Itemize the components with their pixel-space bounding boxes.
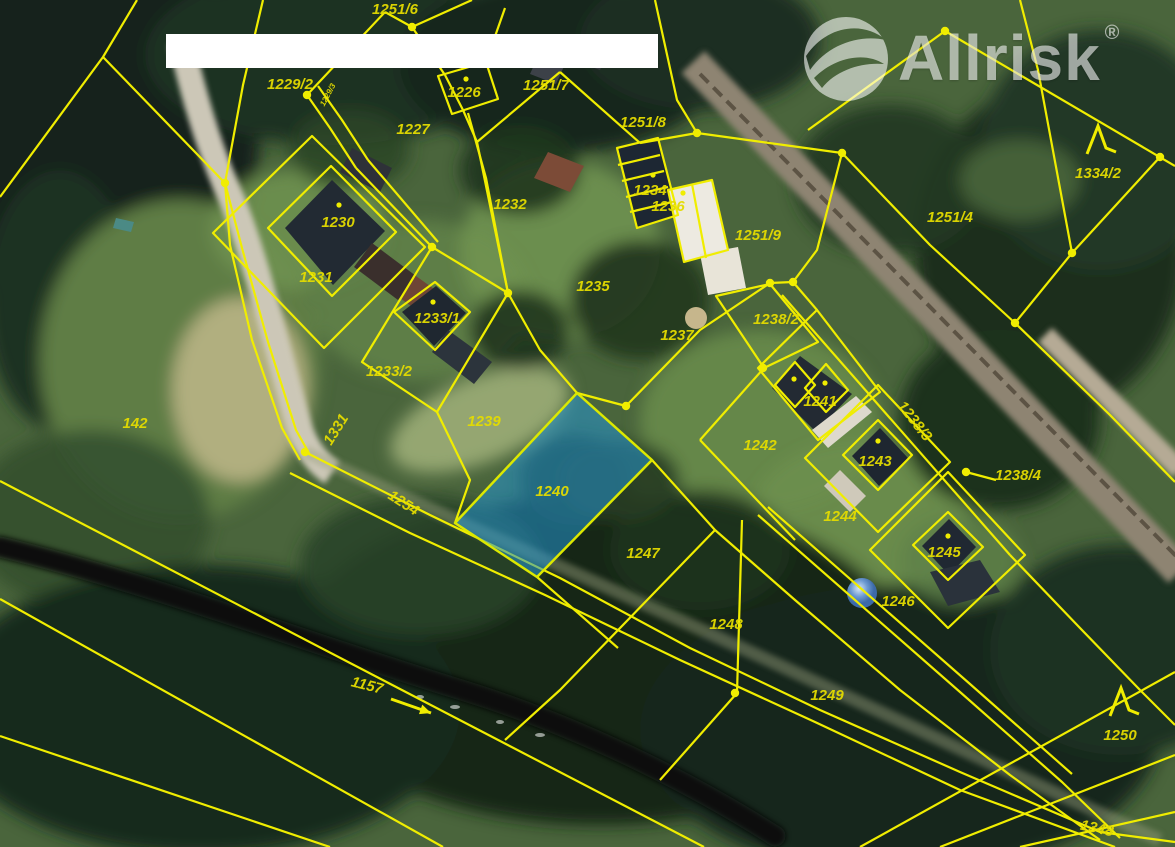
map-viewport: 1251/61229/21229/3122612271251/71251/813… bbox=[0, 0, 1175, 847]
house-marker-dot bbox=[822, 380, 827, 385]
parcel-label-1240: 1240 bbox=[535, 483, 569, 500]
parcel-label-1237: 1237 bbox=[660, 327, 694, 344]
parcel-label-1232: 1232 bbox=[493, 196, 527, 213]
parcel-label-1248: 1248 bbox=[709, 616, 743, 633]
parcel-label-1236: 1236 bbox=[651, 198, 685, 215]
parcel-label-1229/2: 1229/2 bbox=[267, 76, 314, 93]
house-marker-dot bbox=[791, 376, 796, 381]
parcel-label-1243: 1243 bbox=[858, 453, 892, 470]
cadastral-aerial-map: 1251/61229/21229/3122612271251/71251/813… bbox=[0, 0, 1175, 847]
house-marker-dot bbox=[875, 438, 880, 443]
parcel-label-1235: 1235 bbox=[576, 278, 610, 295]
house-marker-dot bbox=[650, 172, 655, 177]
boundary-vertex-dot bbox=[1156, 153, 1164, 161]
parcel-label-1231: 1231 bbox=[299, 269, 332, 286]
parcel-label-1247: 1247 bbox=[626, 545, 660, 562]
parcel-label-1241: 1241 bbox=[803, 393, 836, 410]
parcel-label-1334/2: 1334/2 bbox=[1075, 165, 1122, 182]
parcel-label-1251/9: 1251/9 bbox=[735, 227, 782, 244]
boundary-vertex-dot bbox=[838, 149, 846, 157]
parcel-label-1239: 1239 bbox=[467, 413, 501, 430]
pool-dome bbox=[847, 578, 877, 608]
boundary-vertex-dot bbox=[1011, 319, 1019, 327]
house-marker-dot bbox=[463, 76, 468, 81]
parcel-label-1250: 1250 bbox=[1103, 727, 1137, 744]
boundary-vertex-dot bbox=[622, 402, 630, 410]
boundary-vertex-dot bbox=[962, 468, 970, 476]
boundary-vertex-dot bbox=[1068, 249, 1076, 257]
parcel-label-1249: 1249 bbox=[810, 687, 844, 704]
redaction-bar bbox=[166, 34, 658, 68]
parcel-label-1251/8: 1251/8 bbox=[620, 114, 667, 131]
boundary-vertex-dot bbox=[941, 27, 949, 35]
house-marker-dot bbox=[430, 299, 435, 304]
round-feature bbox=[685, 307, 707, 329]
house-marker-dot bbox=[336, 202, 341, 207]
parcel-label-1246: 1246 bbox=[881, 593, 915, 610]
boundary-vertex-dot bbox=[504, 289, 512, 297]
boundary-vertex-dot bbox=[789, 278, 797, 286]
parcel-label-1251/4: 1251/4 bbox=[927, 209, 974, 226]
boundary-vertex-dot bbox=[408, 23, 416, 31]
boundary-vertex-dot bbox=[221, 179, 229, 187]
parcel-label-1245: 1245 bbox=[927, 544, 961, 561]
boundary-vertex-dot bbox=[766, 279, 774, 287]
parcel-label-1233/2: 1233/2 bbox=[366, 363, 413, 380]
boundary-vertex-dot bbox=[759, 364, 767, 372]
parcel-label-1238/2: 1238/2 bbox=[753, 311, 800, 328]
parcel-label-1234: 1234 bbox=[633, 182, 667, 199]
parcel-label-1233/1: 1233/1 bbox=[414, 310, 460, 327]
parcel-label-1244: 1244 bbox=[823, 508, 857, 525]
parcel-label-1230: 1230 bbox=[321, 214, 355, 231]
boundary-vertex-dot bbox=[731, 689, 739, 697]
white-annex bbox=[700, 247, 746, 295]
house-marker-dot bbox=[945, 533, 950, 538]
house-marker-dot bbox=[680, 190, 685, 195]
boundary-vertex-dot bbox=[428, 243, 436, 251]
parcel-label-1251/7: 1251/7 bbox=[523, 77, 570, 94]
parcel-label-1238/4: 1238/4 bbox=[995, 467, 1042, 484]
parcel-label-1242: 1242 bbox=[743, 437, 777, 454]
parcel-label-142: 142 bbox=[122, 415, 148, 432]
parcel-label-1226: 1226 bbox=[447, 84, 481, 101]
boundary-vertex-dot bbox=[301, 448, 309, 456]
parcel-label-1227: 1227 bbox=[396, 121, 430, 138]
parcel-label-1251/6: 1251/6 bbox=[372, 1, 419, 18]
boundary-vertex-dot bbox=[693, 129, 701, 137]
